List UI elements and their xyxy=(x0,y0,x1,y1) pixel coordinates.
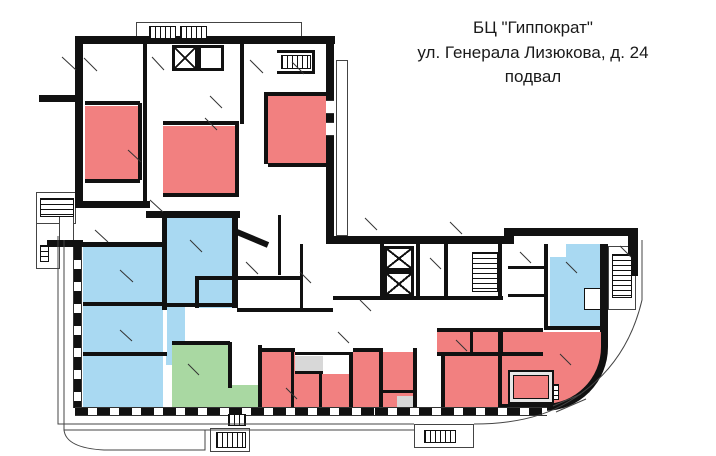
stairs-icon-4 xyxy=(40,245,49,262)
window-wall-0 xyxy=(73,247,82,408)
floor-plan xyxy=(0,0,716,456)
wall-52 xyxy=(138,103,142,180)
wall-56 xyxy=(163,121,237,125)
stairs-icon-5 xyxy=(472,252,498,292)
room-block xyxy=(445,356,502,408)
equipment-pad xyxy=(508,370,554,404)
wall-64 xyxy=(277,71,315,74)
wall-27 xyxy=(237,308,333,312)
wall-21 xyxy=(195,276,199,308)
wall-25 xyxy=(498,244,502,296)
wall-65 xyxy=(312,50,315,74)
wall-51 xyxy=(500,332,503,352)
stairs-icon-7 xyxy=(424,430,456,443)
elevator-shaft-1 xyxy=(384,271,414,297)
room-green xyxy=(172,345,228,408)
stairs-icon-0 xyxy=(149,26,176,39)
stairs-icon-9 xyxy=(228,414,246,426)
notch-2 xyxy=(584,288,601,310)
wall-49 xyxy=(437,352,543,356)
wall-14 xyxy=(83,242,167,247)
wall-16 xyxy=(83,352,167,356)
wall-32 xyxy=(508,266,546,269)
room-blue-b xyxy=(83,306,163,352)
notch-1 xyxy=(550,244,566,257)
office-upper-3 xyxy=(268,96,330,163)
wall-33 xyxy=(508,294,546,297)
wall-12 xyxy=(162,215,167,310)
wall-7 xyxy=(333,236,508,244)
window-gap-0 xyxy=(326,100,334,114)
office-upper-1 xyxy=(85,106,138,179)
stairs-icon-8 xyxy=(216,432,246,448)
wall-13 xyxy=(232,215,238,308)
wall-46 xyxy=(441,352,445,408)
wall-1 xyxy=(75,36,83,208)
wall-58 xyxy=(163,193,239,197)
room-blue-a xyxy=(83,247,163,302)
elevator-shaft-3 xyxy=(198,45,224,71)
wall-9 xyxy=(508,228,634,236)
wall-28 xyxy=(278,215,281,275)
wall-24 xyxy=(444,244,448,296)
wall-31 xyxy=(544,244,548,328)
wall-55 xyxy=(143,44,147,204)
floor-plan-page: БЦ "Гиппократ" ул. Генерала Лизюкова, д.… xyxy=(0,0,716,456)
wall-5 xyxy=(146,211,240,218)
wall-60 xyxy=(268,92,330,96)
exterior-outline-6 xyxy=(336,60,348,236)
elevator-shaft-2 xyxy=(172,45,198,71)
wall-45 xyxy=(413,348,417,408)
wall-61 xyxy=(268,163,330,167)
wall-36 xyxy=(258,345,262,408)
wall-50 xyxy=(470,332,473,352)
elevator-shaft-0 xyxy=(384,246,414,271)
wall-59 xyxy=(264,92,268,164)
wall-42 xyxy=(349,352,353,408)
window-wall-2 xyxy=(375,407,547,416)
wall-38 xyxy=(291,352,294,408)
window-gap-1 xyxy=(326,122,334,136)
wall-44 xyxy=(379,352,383,408)
wall-62 xyxy=(240,44,244,124)
stairs-icon-6 xyxy=(612,254,632,298)
wall-54 xyxy=(85,179,140,183)
wall-30 xyxy=(237,276,303,280)
wall-63 xyxy=(277,50,315,53)
wall-6 xyxy=(47,240,83,247)
wall-11 xyxy=(600,244,608,332)
window-wall-1 xyxy=(75,407,375,416)
wall-57 xyxy=(235,121,239,195)
wall-3 xyxy=(326,44,334,244)
office-upper-2 xyxy=(163,126,235,193)
wall-53 xyxy=(85,101,140,105)
wall-4 xyxy=(75,201,150,208)
wall-34 xyxy=(544,326,604,330)
store-gray-1 xyxy=(295,356,323,372)
wall-48 xyxy=(437,328,543,332)
stairs-icon-3 xyxy=(40,198,74,217)
wall-23 xyxy=(416,244,420,296)
wall-37 xyxy=(258,348,295,352)
wall-20 xyxy=(199,276,232,280)
wall-39 xyxy=(295,352,353,355)
wall-18 xyxy=(228,342,232,388)
room-l2 xyxy=(295,374,383,408)
wall-47 xyxy=(383,390,413,393)
wall-15 xyxy=(83,302,167,306)
stairs-icon-2 xyxy=(281,55,311,69)
room-blue-c xyxy=(83,356,163,408)
wall-26 xyxy=(333,296,503,300)
wall-2 xyxy=(39,95,77,102)
wall-19 xyxy=(172,341,230,345)
wall-41 xyxy=(319,374,322,408)
stairs-icon-1 xyxy=(180,26,207,39)
wall-17 xyxy=(167,303,238,307)
